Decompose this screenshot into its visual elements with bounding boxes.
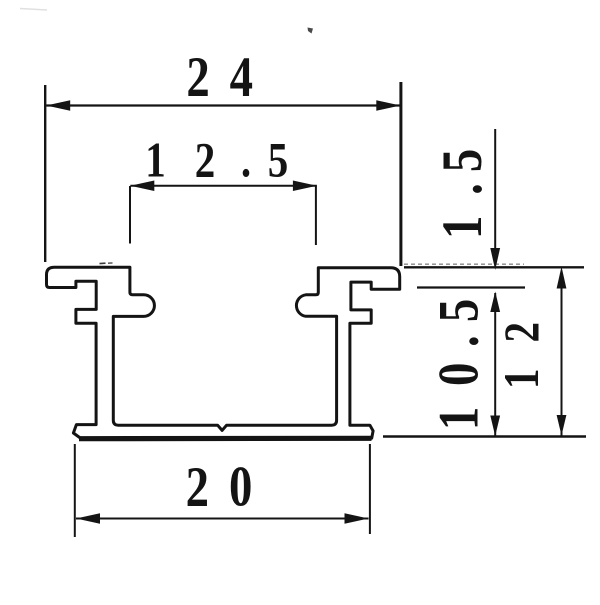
svg-text:2: 2 (195, 131, 215, 187)
svg-text:2: 2 (186, 47, 209, 109)
svg-text:.: . (241, 131, 251, 187)
svg-text:.: . (432, 183, 494, 195)
svg-text:0: 0 (428, 363, 490, 386)
svg-text:1: 1 (145, 131, 165, 187)
svg-text:5: 5 (428, 299, 490, 322)
svg-text:5: 5 (268, 131, 288, 187)
svg-text:4: 4 (230, 47, 253, 109)
svg-text:0: 0 (229, 456, 252, 518)
svg-text:1: 1 (428, 407, 490, 430)
svg-text:2: 2 (493, 322, 549, 342)
svg-text:1: 1 (432, 216, 494, 239)
svg-text:2: 2 (186, 457, 209, 519)
svg-text:5: 5 (432, 149, 494, 172)
svg-text:1: 1 (493, 368, 549, 388)
svg-text:.: . (428, 335, 490, 347)
